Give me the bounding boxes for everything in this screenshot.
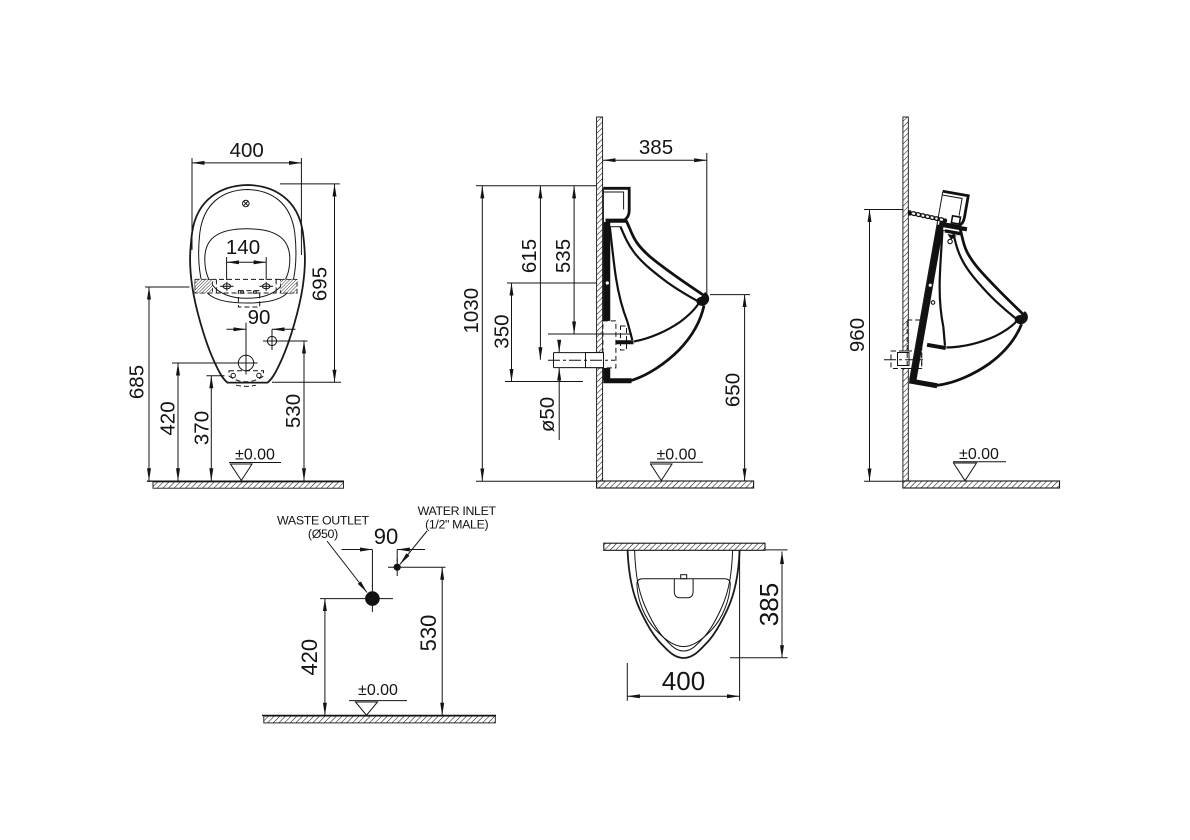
svg-text:±0.00: ±0.00	[656, 446, 696, 463]
svg-text:1030: 1030	[460, 288, 483, 334]
svg-text:685: 685	[125, 365, 148, 399]
svg-text:695: 695	[308, 267, 331, 301]
svg-text:140: 140	[226, 236, 260, 259]
svg-text:400: 400	[662, 666, 705, 696]
svg-text:400: 400	[230, 139, 264, 162]
svg-text:530: 530	[282, 394, 305, 428]
svg-text:650: 650	[721, 373, 744, 407]
svg-text:420: 420	[297, 639, 322, 676]
svg-text:WASTE OUTLET: WASTE OUTLET	[277, 514, 369, 528]
svg-text:ø50: ø50	[536, 397, 559, 432]
svg-text:(1/2" MALE): (1/2" MALE)	[425, 518, 488, 532]
svg-text:±0.00: ±0.00	[358, 682, 398, 699]
svg-text:420: 420	[156, 401, 179, 435]
svg-text:530: 530	[416, 615, 441, 652]
svg-text:615: 615	[518, 239, 541, 273]
svg-text:(Ø50): (Ø50)	[308, 527, 338, 541]
svg-text:385: 385	[754, 583, 784, 626]
svg-text:535: 535	[552, 239, 575, 273]
svg-text:370: 370	[191, 411, 214, 445]
svg-text:90: 90	[248, 306, 271, 329]
svg-text:±0.00: ±0.00	[959, 446, 999, 463]
svg-text:350: 350	[490, 314, 513, 348]
svg-text:90: 90	[374, 524, 398, 549]
svg-text:±0.00: ±0.00	[235, 447, 275, 464]
svg-text:385: 385	[639, 136, 673, 159]
svg-text:960: 960	[846, 318, 869, 352]
svg-text:WATER INLET: WATER INLET	[418, 504, 497, 518]
